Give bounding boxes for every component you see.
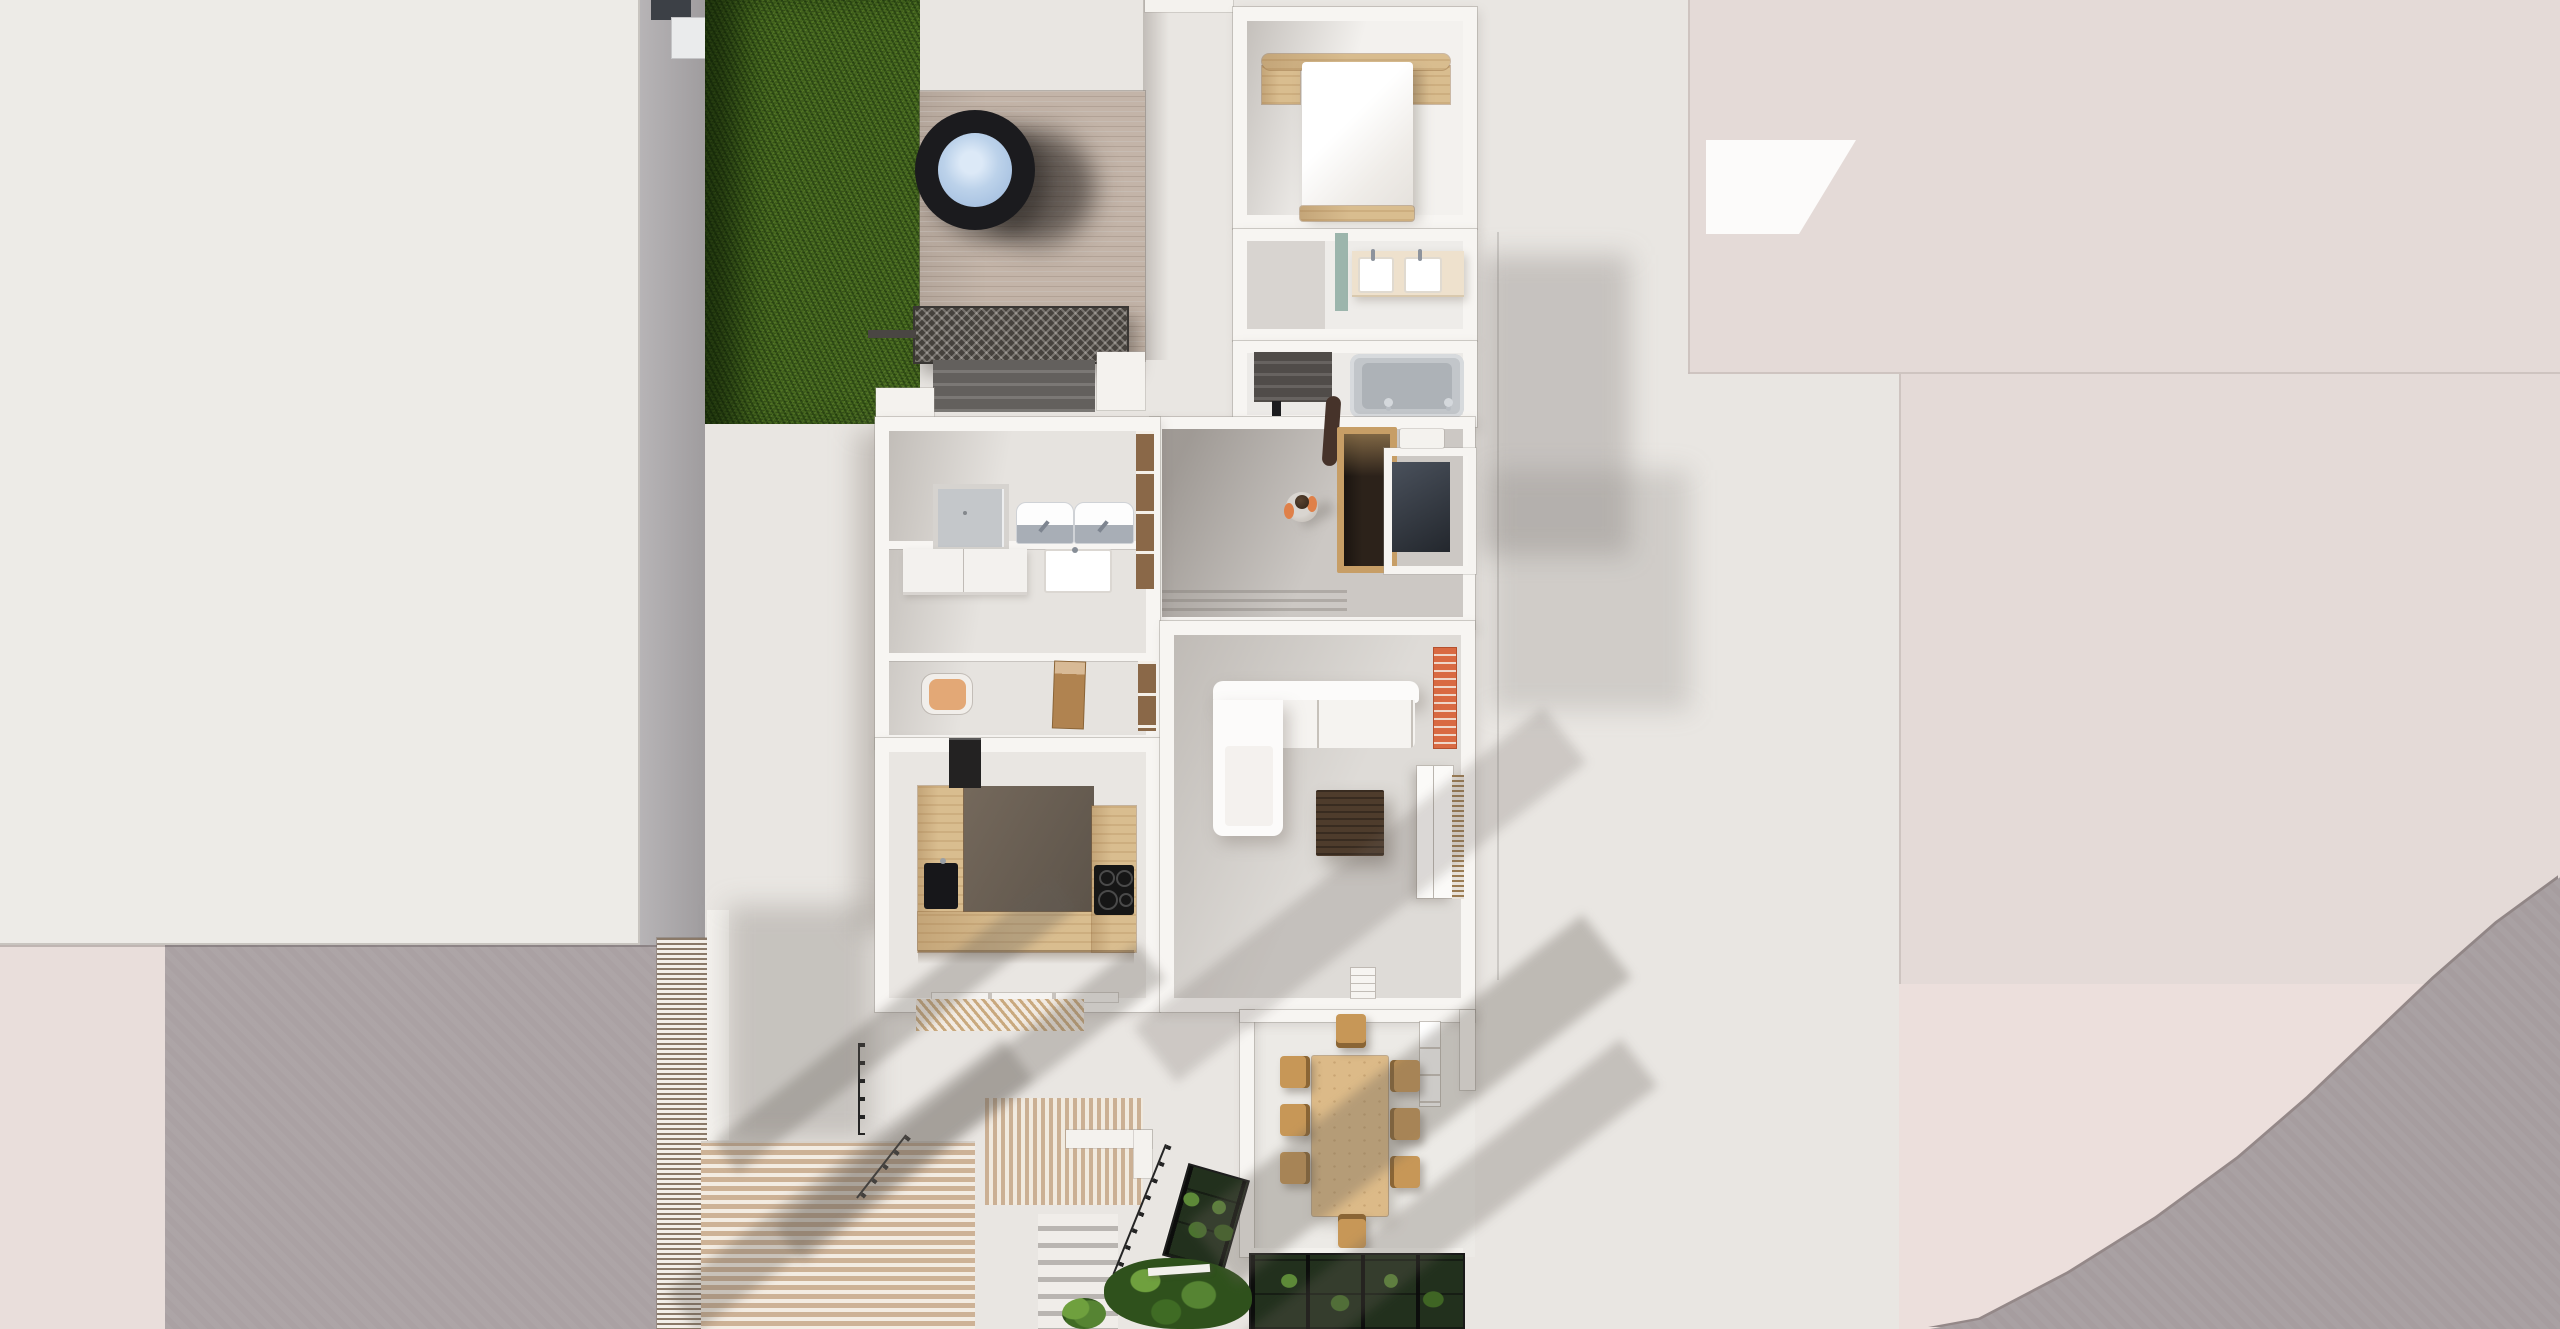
window (1136, 431, 1154, 589)
stair-cheek-left (876, 388, 934, 420)
neighbor-facade-strip (0, 945, 165, 1329)
entry-wall-north (1145, 0, 1233, 12)
parapet (1134, 1130, 1152, 1178)
skylight-icon (651, 0, 691, 20)
nightstand (1412, 66, 1450, 104)
vanity-sink (1358, 257, 1394, 293)
faucet-icon (1371, 249, 1375, 261)
dining-chair (1280, 1056, 1310, 1088)
driveway (165, 945, 657, 1329)
bed (1302, 62, 1413, 214)
burner-icon (1098, 890, 1118, 910)
deck-edge-shadow (1143, 0, 1169, 360)
utility-sink (1044, 549, 1112, 593)
tap-icon (1384, 398, 1393, 407)
window (1138, 661, 1156, 731)
lawn (705, 0, 920, 424)
tiled-wall (1335, 233, 1348, 311)
desk-chair (1053, 661, 1085, 728)
road-wrap (1930, 868, 2560, 1329)
slat-terrace-small (985, 1098, 1143, 1205)
shower (933, 484, 1009, 552)
door-jamb (1272, 401, 1281, 416)
nightstand (1262, 66, 1300, 104)
bathtub-basin (1362, 363, 1452, 409)
tall-unit (949, 738, 981, 788)
faucet-icon (940, 858, 946, 864)
stair-cheek-right (1097, 352, 1145, 410)
wall-band-south (707, 910, 729, 1140)
person-arm (1284, 503, 1294, 519)
deck-stairs (933, 360, 1095, 412)
burner-icon (1116, 870, 1133, 887)
pergola-rail (868, 330, 916, 338)
vanity-sink (1404, 257, 1442, 293)
west-wall-div (889, 653, 1146, 661)
neighbor-roof-left (0, 0, 640, 945)
hot-tub-water (938, 133, 1012, 207)
faucet-icon (1418, 249, 1422, 261)
person-head (1295, 495, 1309, 509)
kitchen-sink (924, 863, 958, 909)
shrub (1062, 1298, 1106, 1329)
burner-icon (1099, 870, 1115, 886)
chimney (1434, 648, 1456, 748)
interior-stairs (1254, 352, 1332, 402)
neighbor-left-side-wall (640, 0, 706, 945)
bed-footboard (1300, 206, 1414, 221)
road (1930, 868, 2560, 1329)
shower-drain-icon (963, 511, 967, 515)
dining-chair (1336, 1014, 1366, 1048)
hall-cabinet (1400, 429, 1444, 448)
hallway-steps (1162, 590, 1347, 593)
armchair-cushion (929, 679, 966, 710)
house-shadow-east-2 (1490, 470, 1690, 710)
stair-railing-frame (1384, 448, 1476, 574)
burner-icon (1119, 893, 1133, 907)
tap-icon (1444, 398, 1453, 407)
magazine-rack (1351, 968, 1375, 998)
faucet-icon (1072, 547, 1078, 553)
bathroom-corridor (1247, 241, 1325, 329)
sofa-chaise-cushion (1225, 746, 1273, 826)
scene (0, 0, 2560, 1329)
utility-counter (903, 549, 1027, 595)
